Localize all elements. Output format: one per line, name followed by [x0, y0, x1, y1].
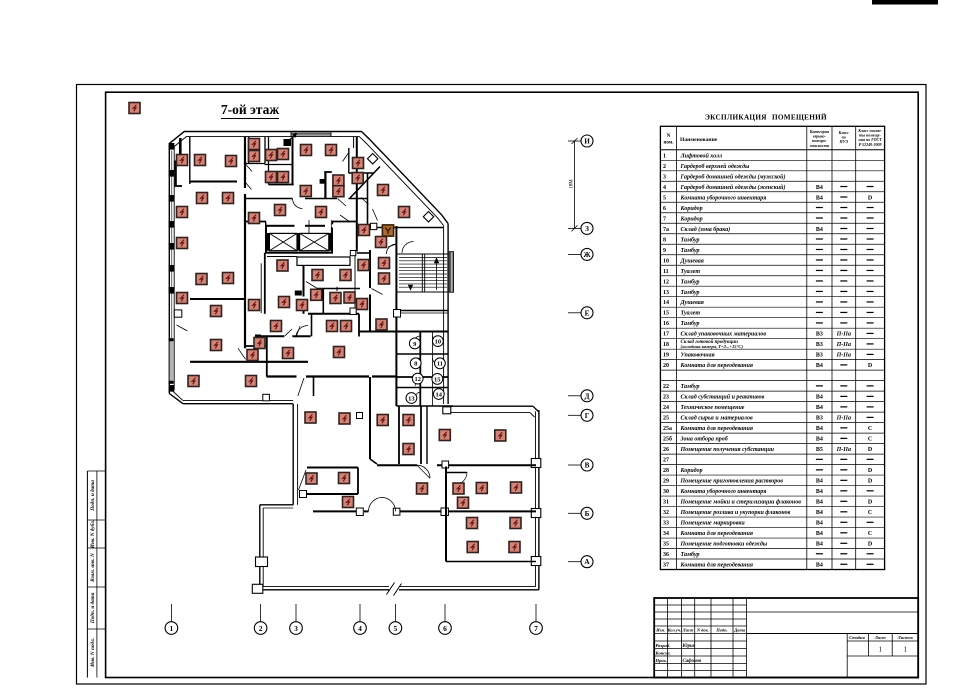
svg-text:28: 28	[663, 468, 669, 474]
svg-text:В4: В4	[816, 395, 823, 401]
svg-text:Упаковочная: Упаковочная	[681, 353, 715, 359]
svg-text:Комната для переодевания: Комната для переодевания	[680, 530, 753, 537]
svg-text:D: D	[868, 500, 873, 506]
svg-text:В3: В3	[816, 353, 823, 359]
svg-text:Тамбур: Тамбур	[681, 383, 700, 390]
svg-text:В4: В4	[816, 489, 823, 495]
svg-text:19: 19	[663, 353, 669, 359]
svg-text:27: 27	[663, 458, 669, 464]
svg-text:П-IIа: П-IIа	[836, 342, 851, 348]
svg-text:18М: 18М	[570, 179, 575, 189]
svg-text:Помещение мойки и стерилизации: Помещение мойки и стерилизации флаконов	[680, 499, 802, 506]
svg-text:10: 10	[435, 339, 442, 346]
svg-text:10: 10	[663, 258, 669, 264]
svg-text:С: С	[868, 531, 872, 537]
svg-text:2: 2	[259, 624, 263, 633]
svg-text:В3: В3	[816, 342, 823, 348]
svg-text:Склад (зона брака): Склад (зона брака)	[681, 226, 731, 233]
svg-text:В4: В4	[816, 510, 823, 516]
svg-text:11: 11	[437, 361, 443, 368]
svg-text:Душевая: Душевая	[680, 300, 704, 306]
svg-text:3: 3	[294, 624, 298, 633]
svg-text:7: 7	[534, 624, 538, 633]
svg-text:33: 33	[663, 521, 669, 527]
svg-text:Помещение розлива и укупорки ф: Помещение розлива и укупорки флаконов	[680, 509, 791, 516]
svg-text:Инв. N подл.: Инв. N подл.	[89, 638, 96, 668]
svg-text:Помещение получения субстанции: Помещение получения субстанции	[680, 446, 775, 453]
svg-text:Подп. и дата: Подп. и дата	[89, 592, 96, 624]
svg-text:ПОМЕЩЕНИЙ: ПОМЕЩЕНИЙ	[772, 113, 827, 122]
svg-text:Склад сырья и материалов: Склад сырья и материалов	[681, 415, 753, 422]
svg-text:3: 3	[663, 174, 666, 180]
svg-text:В4: В4	[816, 563, 823, 569]
svg-text:пом.: пом.	[664, 141, 675, 146]
svg-text:1: 1	[663, 153, 666, 159]
svg-text:29: 29	[663, 479, 669, 485]
svg-text:15: 15	[663, 311, 669, 317]
svg-text:Р 52249-2009: Р 52249-2009	[859, 142, 882, 147]
svg-text:6: 6	[443, 624, 447, 633]
svg-text:D: D	[868, 479, 873, 485]
svg-text:Душевая: Душевая	[680, 258, 704, 264]
svg-text:Г: Г	[585, 412, 590, 420]
svg-text:Коридор: Коридор	[680, 205, 703, 212]
svg-text:13: 13	[408, 395, 415, 402]
svg-text:В4: В4	[816, 426, 823, 432]
svg-text:D: D	[868, 195, 873, 201]
svg-text:2: 2	[663, 164, 666, 170]
svg-text:Разраб.: Разраб.	[656, 643, 671, 648]
svg-text:26: 26	[663, 447, 669, 453]
svg-text:8: 8	[663, 237, 666, 243]
svg-text:Наименование: Наименование	[680, 137, 718, 143]
svg-text:Комната уборочного инвентаря: Комната уборочного инвентаря	[680, 194, 767, 201]
svg-text:30: 30	[663, 489, 669, 495]
svg-text:Комната для переодевания: Комната для переодевания	[680, 425, 753, 432]
svg-text:12: 12	[663, 279, 669, 285]
svg-text:6: 6	[663, 206, 666, 212]
svg-text:31: 31	[663, 500, 669, 506]
svg-text:опасности: опасности	[810, 143, 830, 148]
svg-text:Д: Д	[585, 392, 590, 400]
svg-text:В: В	[585, 462, 590, 470]
svg-text:Кол.уч.: Кол.уч.	[667, 628, 682, 633]
svg-text:D: D	[868, 447, 873, 453]
svg-text:4: 4	[663, 185, 666, 191]
svg-text:П-IIа: П-IIа	[836, 332, 851, 338]
svg-text:7: 7	[663, 216, 666, 222]
svg-text:Туалет: Туалет	[681, 269, 701, 275]
svg-text:В4: В4	[816, 405, 823, 411]
svg-text:И: И	[584, 138, 590, 146]
svg-text:Гардероб домашней одежды (женс: Гардероб домашней одежды (женский)	[680, 184, 786, 191]
svg-text:З: З	[585, 225, 589, 233]
svg-text:D: D	[868, 542, 873, 548]
svg-text:Подп.: Подп.	[715, 628, 727, 633]
svg-text:П-IIа: П-IIа	[836, 447, 851, 453]
svg-text:Дата: Дата	[733, 628, 746, 633]
svg-text:34: 34	[663, 531, 669, 537]
svg-text:А: А	[584, 558, 590, 566]
svg-text:П-IIа: П-IIа	[836, 416, 851, 422]
svg-text:В4: В4	[816, 521, 823, 527]
svg-text:Листов: Листов	[897, 635, 913, 640]
svg-text:1: 1	[170, 624, 174, 633]
svg-text:13: 13	[663, 290, 669, 296]
svg-text:Помещение приготовления раство: Помещение приготовления растворов	[680, 479, 784, 485]
svg-text:ЭКСПЛИКАЦИЯ: ЭКСПЛИКАЦИЯ	[705, 114, 767, 122]
svg-text:Тамбур: Тамбур	[681, 320, 700, 327]
svg-text:Гардероб верхней одежды: Гардероб верхней одежды	[680, 163, 750, 170]
svg-text:Склад упаковочных материалов: Склад упаковочных материалов	[681, 331, 767, 338]
svg-text:В4: В4	[816, 531, 823, 537]
svg-text:Лист: Лист	[682, 628, 694, 633]
svg-text:В3: В3	[816, 332, 823, 338]
svg-text:Инв. N дубл.: Инв. N дубл.	[89, 520, 96, 549]
svg-text:N док.: N док.	[696, 628, 709, 633]
svg-text:9: 9	[663, 248, 666, 254]
svg-text:Сафонов: Сафонов	[683, 659, 703, 664]
svg-text:25б: 25б	[663, 436, 672, 443]
svg-text:В4: В4	[816, 479, 823, 485]
svg-text:Техническое помещение: Техническое помещение	[681, 405, 745, 411]
svg-text:4: 4	[358, 624, 362, 633]
svg-text:Склад субстанций и реактивов: Склад субстанций и реактивов	[681, 394, 765, 401]
svg-text:Ж: Ж	[583, 251, 591, 259]
svg-text:В4: В4	[816, 185, 823, 191]
svg-text:Туалет: Туалет	[681, 311, 701, 317]
svg-text:25а: 25а	[663, 426, 672, 432]
svg-text:5: 5	[394, 624, 398, 633]
svg-text:24: 24	[663, 405, 669, 411]
svg-text:В4: В4	[816, 500, 823, 506]
svg-text:23: 23	[663, 395, 669, 401]
svg-text:1: 1	[903, 646, 907, 654]
svg-text:Тамбур: Тамбур	[681, 247, 700, 254]
svg-text:5: 5	[663, 195, 666, 201]
svg-text:15: 15	[434, 376, 441, 383]
svg-text:35: 35	[663, 542, 669, 548]
svg-text:25: 25	[663, 416, 669, 422]
svg-text:Тамбур: Тамбур	[681, 551, 700, 558]
svg-text:Комната для переодевания: Комната для переодевания	[680, 362, 753, 369]
svg-text:Зона отбора проб: Зона отбора проб	[680, 436, 729, 443]
svg-text:В4: В4	[816, 227, 823, 233]
svg-text:11: 11	[663, 269, 669, 275]
svg-text:Стадия: Стадия	[849, 635, 865, 640]
svg-text:(холодная камера, Т=2...+15°С): (холодная камера, Т=2...+15°С)	[681, 344, 744, 349]
svg-text:С: С	[868, 510, 872, 516]
svg-text:D: D	[868, 363, 873, 369]
svg-text:С: С	[868, 437, 872, 443]
svg-text:ПУЭ: ПУЭ	[839, 139, 849, 144]
svg-text:17: 17	[663, 332, 669, 338]
svg-text:Коридор: Коридор	[680, 467, 703, 474]
svg-text:В5: В5	[816, 447, 823, 453]
svg-text:N: N	[667, 134, 671, 139]
svg-text:36: 36	[663, 552, 669, 558]
svg-text:В4: В4	[816, 542, 823, 548]
svg-text:Подп. и дата: Подп. и дата	[89, 480, 96, 512]
svg-text:П-IIа: П-IIа	[836, 353, 851, 359]
svg-text:7-ой этаж: 7-ой этаж	[221, 102, 280, 117]
svg-text:В4: В4	[816, 363, 823, 369]
svg-text:18: 18	[663, 342, 669, 348]
svg-text:В3: В3	[816, 416, 823, 422]
svg-text:Консул.: Консул.	[655, 650, 671, 655]
svg-text:Пров.: Пров.	[655, 658, 667, 663]
svg-text:Юрин: Юрин	[682, 644, 696, 649]
svg-text:Коридор: Коридор	[680, 215, 703, 222]
svg-text:Взам. инв. N: Взам. инв. N	[90, 553, 96, 583]
svg-text:Помещение подготовки одежды: Помещение подготовки одежды	[680, 541, 768, 548]
svg-text:В4: В4	[816, 195, 823, 201]
svg-text:Комната уборочного инвентаря: Комната уборочного инвентаря	[680, 488, 767, 495]
svg-text:Е: Е	[585, 309, 590, 317]
svg-text:Изм.: Изм.	[655, 628, 665, 633]
svg-text:1: 1	[879, 646, 883, 654]
svg-text:12: 12	[414, 376, 421, 383]
svg-text:Комната для переодевания: Комната для переодевания	[680, 562, 753, 569]
svg-text:D: D	[868, 468, 873, 474]
svg-text:Гардероб домашней одежды (мужс: Гардероб домашней одежды (мужской)	[680, 173, 786, 180]
svg-text:С: С	[868, 426, 872, 432]
svg-text:20: 20	[663, 363, 669, 369]
svg-text:Лист: Лист	[874, 635, 886, 640]
svg-text:22: 22	[663, 384, 669, 390]
svg-text:Б: Б	[585, 510, 590, 518]
svg-text:Помещение маркировки: Помещение маркировки	[680, 521, 746, 527]
svg-text:Лифтовой холл: Лифтовой холл	[680, 152, 723, 159]
svg-text:Тамбур: Тамбур	[681, 236, 700, 243]
svg-text:37: 37	[663, 563, 669, 569]
svg-text:32: 32	[663, 510, 669, 516]
svg-text:7а: 7а	[663, 227, 669, 233]
svg-text:14: 14	[436, 391, 443, 398]
svg-text:14: 14	[663, 300, 669, 306]
svg-text:16: 16	[663, 321, 669, 327]
svg-text:Тамбур: Тамбур	[681, 289, 700, 296]
svg-text:В4: В4	[816, 437, 823, 443]
svg-text:Тамбур: Тамбур	[681, 278, 700, 285]
